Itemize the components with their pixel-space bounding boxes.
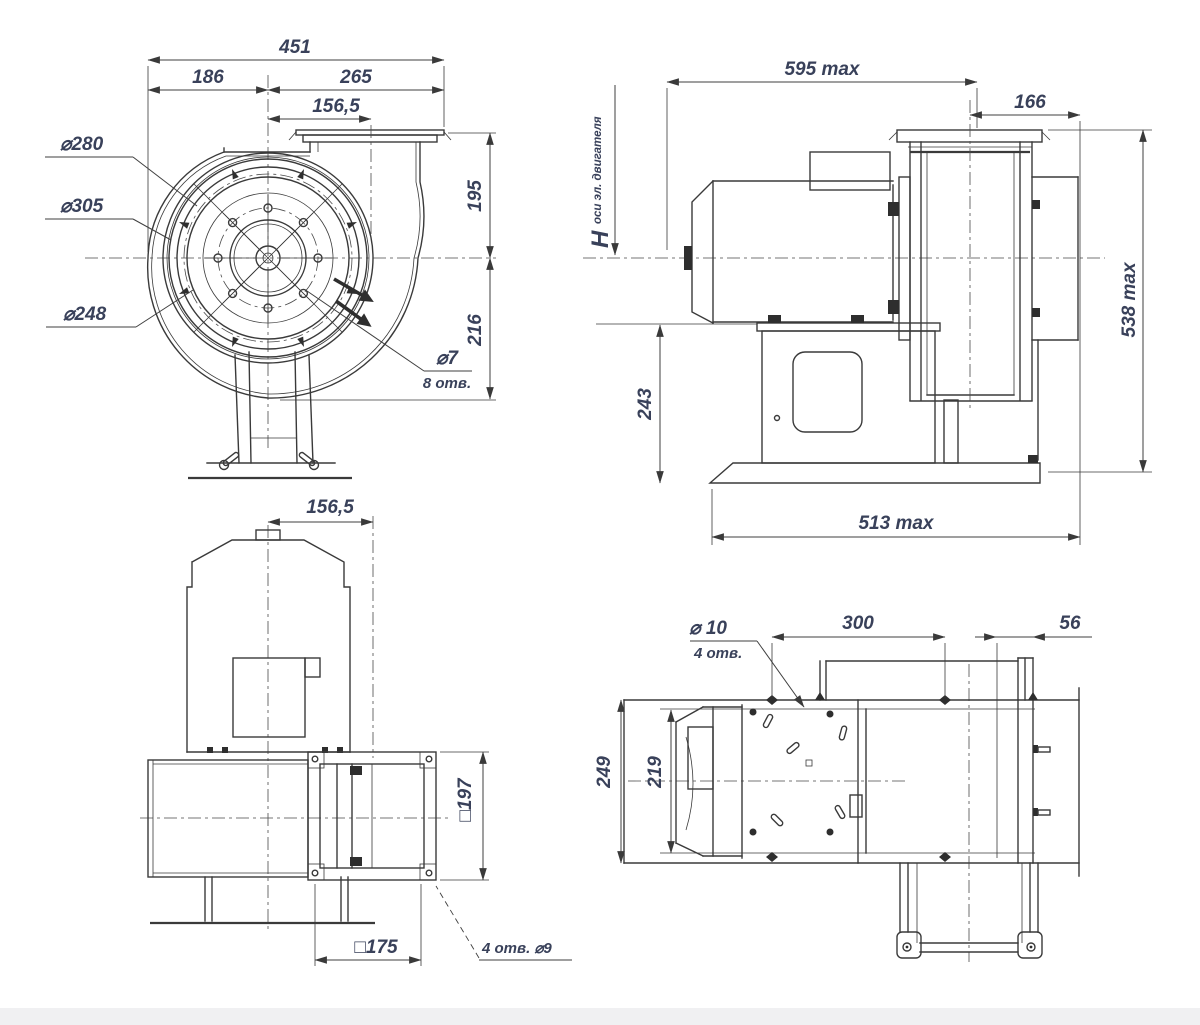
terminal-box [810, 152, 890, 190]
pedestal [710, 315, 1040, 483]
inlet-box-top [750, 700, 867, 863]
dim-side-height-max: 538 max [1119, 261, 1140, 337]
motor-top [676, 705, 742, 858]
label-hole-d7: ⌀7 [436, 348, 459, 369]
top-view: ⌀ 10 4 отв. 300 56 249 219 [594, 613, 1092, 962]
dim-front-height-bottom: 216 [465, 314, 486, 347]
front-view: 451 186 265 156,5 195 216 ⌀280 ⌀305 ⌀248… [45, 37, 496, 478]
side-view-dimensions: 595 max 166 Н оси эл. двигателя 243 538 … [587, 59, 1152, 545]
dim-front-left: 186 [192, 67, 224, 88]
housing-top [815, 658, 1050, 863]
dim-side-outlet: 166 [1014, 92, 1046, 113]
label-top-hole-d: ⌀ 10 [689, 618, 727, 639]
label-top-hole-count: 4 отв. [693, 645, 742, 662]
dim-side-base-height: 243 [635, 388, 656, 421]
front-view-dimensions: 451 186 265 156,5 195 216 ⌀280 ⌀305 ⌀248… [45, 37, 496, 400]
dim-plan-outlet-offset: 156,5 [306, 497, 354, 518]
base-plan [624, 688, 1079, 876]
support-legs [188, 352, 352, 478]
dim-front-total: 451 [278, 37, 311, 58]
plan-view-dimensions: 156,5 □197 □175 4 отв. ⌀9 [268, 497, 572, 966]
dim-front-outlet-offset: 156,5 [312, 96, 360, 117]
label-d248: ⌀248 [63, 304, 107, 325]
fan-drawing-canvas: 451 186 265 156,5 195 216 ⌀280 ⌀305 ⌀248… [0, 0, 1200, 1025]
label-hole-count-8: 8 отв. [423, 375, 471, 392]
motor-side [684, 152, 893, 323]
outlet-duct-top [897, 863, 1042, 958]
dim-axis-height-symbol: Н [587, 230, 614, 248]
dim-plan-bolt-square: □175 [354, 937, 398, 958]
label-plan-holes: 4 отв. ⌀9 [481, 940, 552, 957]
dim-axis-height-label: оси эл. двигателя [592, 116, 604, 224]
access-door [793, 352, 862, 432]
housing-side [888, 100, 1078, 460]
dim-top-base-width: 249 [594, 756, 615, 789]
side-view: 595 max 166 Н оси эл. двигателя 243 538 … [583, 59, 1152, 545]
plan-view: 156,5 □197 □175 4 отв. ⌀9 [140, 497, 572, 966]
dim-top-hole-spacing: 300 [842, 613, 874, 634]
dim-side-base-length-max: 513 max [858, 513, 934, 534]
drawing-sheet: 451 186 265 156,5 195 216 ⌀280 ⌀305 ⌀248… [0, 0, 1200, 1025]
label-d280: ⌀280 [60, 134, 104, 155]
label-d305: ⌀305 [60, 196, 104, 217]
dim-plan-flange-size: □197 [455, 777, 476, 822]
dim-front-height-top: 195 [465, 180, 486, 212]
footer-bar [0, 1008, 1200, 1025]
dim-side-length-max: 595 max [784, 59, 860, 80]
motor-plan [187, 530, 350, 753]
housing-plan [148, 752, 436, 923]
dim-top-edge-offset: 56 [1059, 613, 1081, 634]
dim-top-motor-width: 219 [645, 756, 666, 789]
junction-box [233, 658, 305, 737]
dim-front-right: 265 [339, 67, 372, 88]
